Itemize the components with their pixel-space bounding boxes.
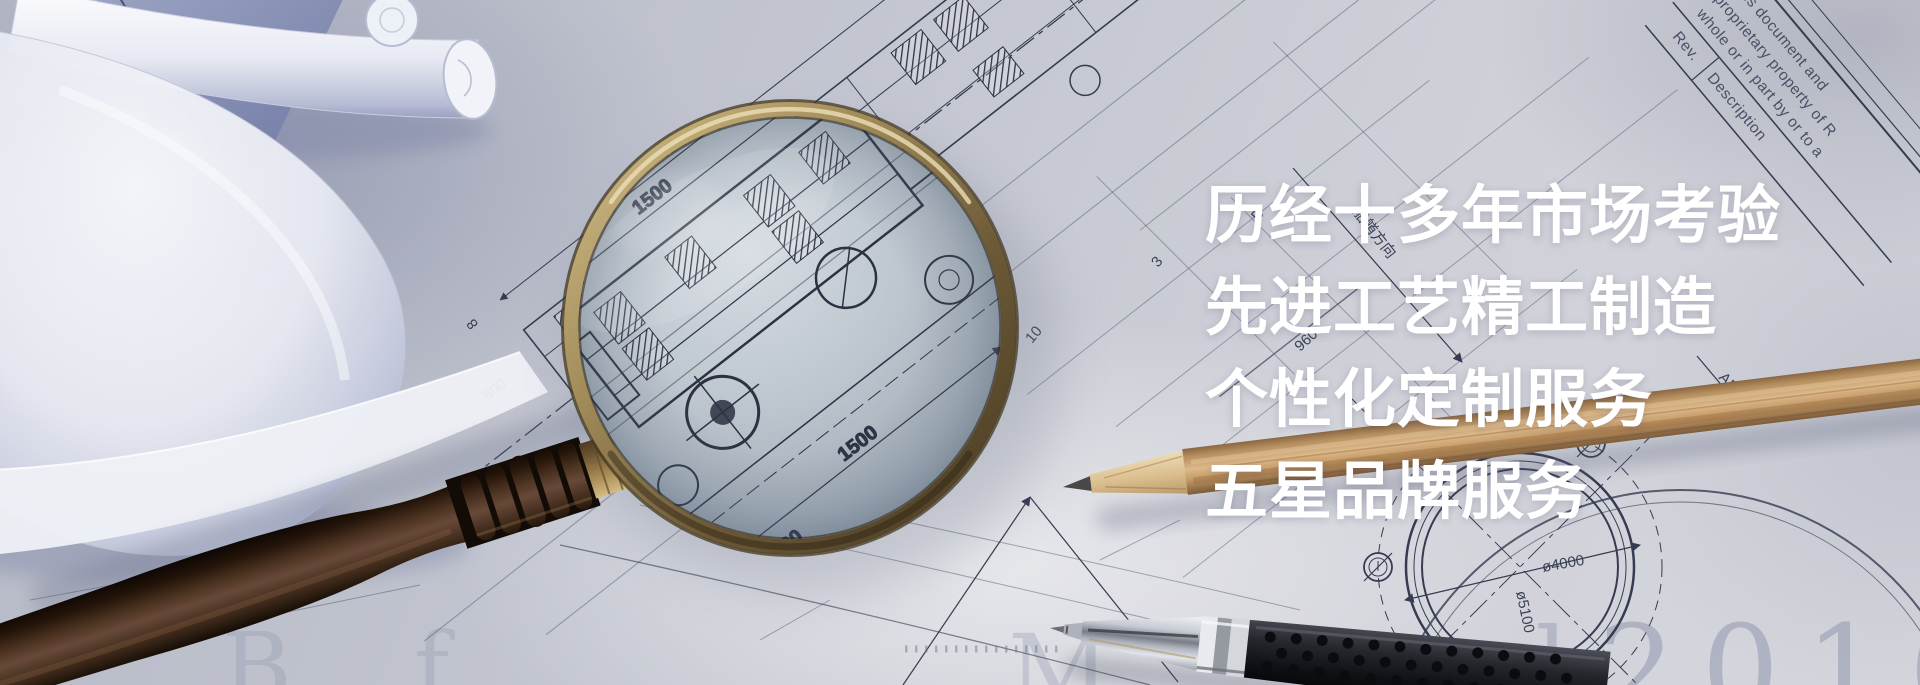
watermark-year: 2016— bbox=[1598, 599, 1920, 685]
hero-banner: B f M d 2016— bbox=[0, 0, 1920, 685]
watermark-letters: B f bbox=[222, 613, 495, 685]
magnifier-lens: 1500 1500 1500 1500 1120 4 bbox=[453, 0, 1098, 624]
dim-label: 8 bbox=[463, 315, 482, 332]
headline-line-2: 先进工艺精工制造 bbox=[1205, 262, 1781, 354]
pencil-graphite-tip bbox=[1062, 475, 1094, 495]
headline: 历经十多年市场考验 先进工艺精工制造 个性化定制服务 五星品牌服务 bbox=[1205, 170, 1781, 538]
headline-line-1: 历经十多年市场考验 bbox=[1205, 170, 1781, 262]
dia-label: ø4000 bbox=[1541, 552, 1586, 576]
headline-line-3: 个性化定制服务 bbox=[1205, 354, 1781, 446]
dim-label: 3 bbox=[1148, 253, 1166, 270]
headline-line-4: 五星品牌服务 bbox=[1205, 446, 1781, 538]
